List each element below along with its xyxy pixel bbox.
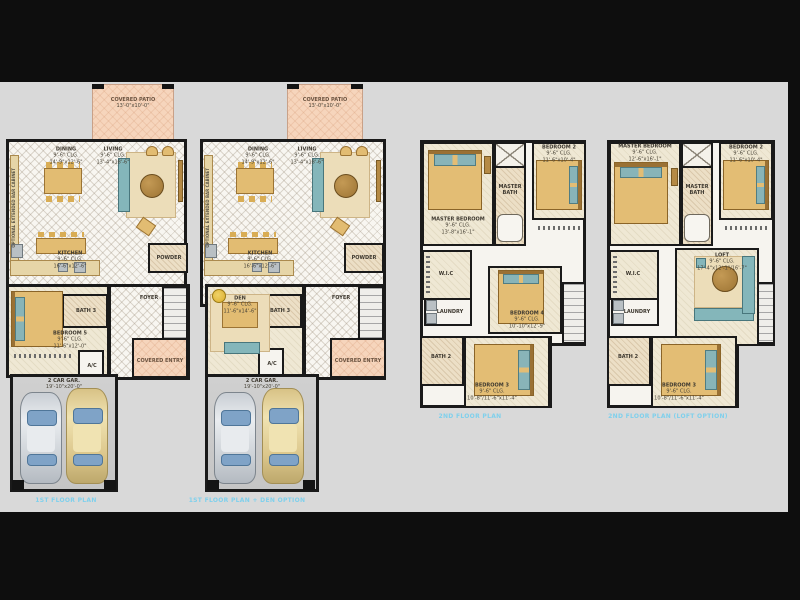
plan1-foyer-label: FOYER — [140, 295, 158, 301]
room-dims: 13'-0"x10'-0" — [111, 103, 155, 109]
plan1-entry-label: COVERED ENTRY — [137, 358, 183, 364]
plan1-kitchen-label: KITCHEN9'-6" CLG.16'-6"x12'-6" — [53, 251, 86, 270]
room-dims: 13'-4"x18'-6" — [96, 159, 129, 165]
plan4-laundry-label: LAUNDRY — [624, 309, 651, 315]
bed — [536, 160, 582, 210]
room-dims: 13'-0"x10'-0" — [303, 103, 347, 109]
bathtub — [497, 214, 523, 242]
washer — [613, 300, 624, 311]
plan3-wic-label: W.I.C — [439, 271, 453, 277]
closet-rail — [725, 226, 767, 230]
room-dims: 10'-8"/11'-6"x11'-4" — [654, 395, 704, 401]
plan4-bedroom3-label: BEDROOM 39'-6" CLG.10'-8"/11'-6"x11'-4" — [654, 383, 704, 402]
plan4-stairs — [757, 282, 775, 344]
plan4-loft-label: LOFT9'-6" CLG.17'-4"x12'-1"/16'-7" — [697, 253, 747, 272]
plan1-caption: 1ST FLOOR PLAN — [35, 497, 96, 504]
room-dims: 12'-6"x16'-1" — [618, 156, 672, 162]
coffee-table — [140, 174, 164, 198]
car-rear-window — [269, 454, 299, 466]
room-dims: 14'-9"x12'-6" — [241, 159, 274, 165]
car-windshield — [73, 408, 103, 424]
plan1-ac-label: A/C — [87, 363, 96, 369]
room-clg: 9'-6" CLG. — [243, 257, 276, 263]
plan2-covered-patio — [287, 84, 363, 141]
room-dims: 10'-10"x12'-9" — [509, 323, 545, 329]
room-dims: 11'-6"x10'-4" — [729, 157, 763, 163]
room-dims: 13'-4"x18'-6" — [290, 159, 323, 165]
plan2-living-label: LIVING9'-6" CLG.13'-4"x18'-6" — [290, 147, 323, 166]
plan3-bath2 — [420, 336, 464, 386]
plan4-bath2 — [607, 336, 651, 386]
room-clg: 9'-6" CLG. — [729, 151, 763, 157]
room-dims: 19'-10"x20'-0" — [46, 384, 82, 390]
room-dims: 11'-6"x12'-0" — [53, 343, 87, 349]
closet-rail — [14, 354, 72, 358]
island-stools — [38, 232, 84, 237]
dining-chairs — [46, 196, 80, 202]
room-name: BATH — [498, 190, 521, 196]
room-clg: 9'-6" CLG. — [542, 151, 576, 157]
room-clg: 9'-6" CLG. — [241, 153, 274, 159]
room-dims: 11'-6"x14'-6" — [223, 308, 256, 314]
accent-chair — [146, 146, 158, 156]
car-roof — [221, 426, 249, 452]
accent-chair — [340, 146, 352, 156]
plan4-bedroom2-label: BEDROOM 29'-6" CLG.11'-6"x10'-4" — [729, 145, 763, 164]
plan2-ac-label: A/C — [267, 361, 276, 367]
room-clg: 9'-6" CLG. — [223, 302, 256, 308]
car-windshield — [27, 410, 57, 426]
room-dims: 14'-9"x12'-6" — [49, 159, 82, 165]
den-sofa — [224, 342, 260, 354]
wall-stub — [92, 84, 104, 89]
media-console — [178, 160, 183, 202]
room-dims: 10'-8"/11'-6"x11'-4" — [467, 395, 517, 401]
plan2-entry-label: COVERED ENTRY — [335, 358, 381, 364]
plan3-master-label: MASTER BEDROOM9'-6" CLG.13'-8"x16'-1" — [431, 217, 485, 236]
room-clg: 9'-6" CLG. — [53, 257, 86, 263]
plan3-bedroom2-label: BEDROOM 29'-6" CLG.11'-6"x10'-4" — [542, 145, 576, 164]
dryer — [426, 313, 437, 324]
plan1-dining-label: DINING9'-6" CLG.14'-9"x12'-6" — [49, 147, 82, 166]
room-dims: 17'-4"x12'-1"/16'-7" — [697, 265, 747, 271]
room-clg: 9'-6" CLG. — [96, 153, 129, 159]
room-clg: 9'-6" CLG. — [49, 153, 82, 159]
plan1-patio-label: COVERED PATIO13'-0"x10'-0" — [111, 97, 155, 110]
bed — [723, 160, 769, 210]
closet-rail — [426, 256, 430, 294]
car-rear-window — [73, 454, 103, 466]
plan3-masterbath-label: MASTERBATH — [498, 184, 521, 197]
room-name: BATH — [685, 190, 708, 196]
wall-stub — [351, 84, 363, 89]
plan2-foyer-label: FOYER — [332, 295, 350, 301]
plan1-bath3-label: BATH 3 — [76, 308, 96, 314]
wall-stub — [287, 84, 299, 89]
room-dims: 13'-8"x16'-1" — [431, 229, 485, 235]
plan2-dining-label: DINING9'-6" CLG.14'-9"x12'-6" — [241, 147, 274, 166]
plan4-caption: 2ND FLOOR PLAN (LOFT OPTION) — [608, 413, 728, 420]
dining-table — [236, 168, 274, 194]
bed — [614, 162, 668, 224]
media-console — [376, 160, 381, 202]
plan2-den-label: DEN9'-6" CLG.11'-6"x14'-6" — [223, 296, 256, 315]
shower — [681, 142, 713, 168]
plan4-bath2-label: BATH 2 — [618, 354, 638, 360]
car-rear-window — [221, 454, 251, 466]
plan3-laundry-label: LAUNDRY — [437, 309, 464, 315]
accent-chair — [356, 146, 368, 156]
room-dims: 19'-10"x20'-0" — [244, 384, 280, 390]
room-dims: 11'-6"x10'-4" — [542, 157, 576, 163]
dining-chairs — [238, 196, 272, 202]
plan1-powder-label: POWDER — [157, 255, 182, 261]
room-clg: 9'-6" CLG. — [53, 337, 87, 343]
plan1-covered-patio — [92, 84, 174, 141]
bathtub — [684, 214, 710, 242]
car-windshield — [269, 408, 299, 424]
car-windshield — [221, 410, 251, 426]
plan3-caption: 2ND FLOOR PLAN — [439, 413, 502, 420]
plan2-kitchen-label: KITCHEN9'-6" CLG.16'-6"x12'-6" — [243, 251, 276, 270]
coffee-table — [334, 174, 358, 198]
plan4-masterbath-label: MASTERBATH — [685, 184, 708, 197]
floorplan-sheet: COVERED PATIO13'-0"x10'-0" OPTIONAL EXTE… — [0, 0, 800, 600]
plan2-bath3-label: BATH 3 — [270, 308, 290, 314]
plan2-patio-label: COVERED PATIO13'-0"x10'-0" — [303, 97, 347, 110]
plan3-stairs — [562, 282, 586, 344]
garage-door-bracket — [207, 480, 219, 490]
car-roof — [269, 424, 297, 452]
closet-rail — [538, 226, 580, 230]
washer — [426, 300, 437, 311]
room-clg: 9'-6" CLG. — [509, 317, 545, 323]
plan1-living-label: LIVING9'-6" CLG.13'-4"x18'-6" — [96, 147, 129, 166]
dresser — [671, 168, 678, 186]
plan3-bath2-label: BATH 2 — [431, 354, 451, 360]
plan2-caption: 1ST FLOOR PLAN + DEN OPTION — [189, 497, 306, 504]
bed — [428, 150, 482, 210]
dining-table — [44, 168, 82, 194]
room-dims: 16'-6"x12'-6" — [53, 263, 86, 269]
plan2-powder-label: POWDER — [352, 255, 377, 261]
sofa — [118, 158, 130, 212]
plan4-master-label: MASTER BEDROOM9'-6" CLG.12'-6"x16'-1" — [618, 144, 672, 163]
accent-chair — [162, 146, 174, 156]
car-roof — [27, 426, 55, 452]
garage-door-bracket — [303, 480, 315, 490]
room-dims: 16'-6"x12'-6" — [243, 263, 276, 269]
shower — [494, 142, 526, 168]
car-rear-window — [27, 454, 57, 466]
garage-door-bracket — [12, 480, 24, 490]
dresser — [484, 156, 491, 174]
closet-rail — [613, 256, 617, 294]
island-stools — [230, 232, 276, 237]
dryer — [613, 313, 624, 324]
plan3-bedroom3-label: BEDROOM 39'-6" CLG.10'-8"/11'-6"x11'-4" — [467, 383, 517, 402]
plan2-cabinet-note: OPTIONAL EXTENDED BAR CABINET — [205, 168, 210, 248]
wall-stub — [162, 84, 174, 89]
garage-door-bracket — [104, 480, 116, 490]
room-clg: 9'-6" CLG. — [290, 153, 323, 159]
plan1-garage-label: 2 CAR GAR.19'-10"x20'-0" — [46, 378, 82, 391]
plan4-wic-label: W.I.C — [626, 271, 640, 277]
plan1-bedroom5-label: BEDROOM 59'-6" CLG.11'-6"x12'-0" — [53, 331, 87, 350]
plan1-cabinet-note: OPTIONAL EXTENDED BAR CABINET — [11, 168, 16, 248]
car-roof — [73, 424, 101, 452]
plan3-bedroom4-label: BEDROOM 49'-6" CLG.10'-10"x12'-9" — [509, 311, 545, 330]
sofa — [312, 158, 324, 212]
plan2-garage-label: 2 CAR GAR.19'-10"x20'-0" — [244, 378, 280, 391]
